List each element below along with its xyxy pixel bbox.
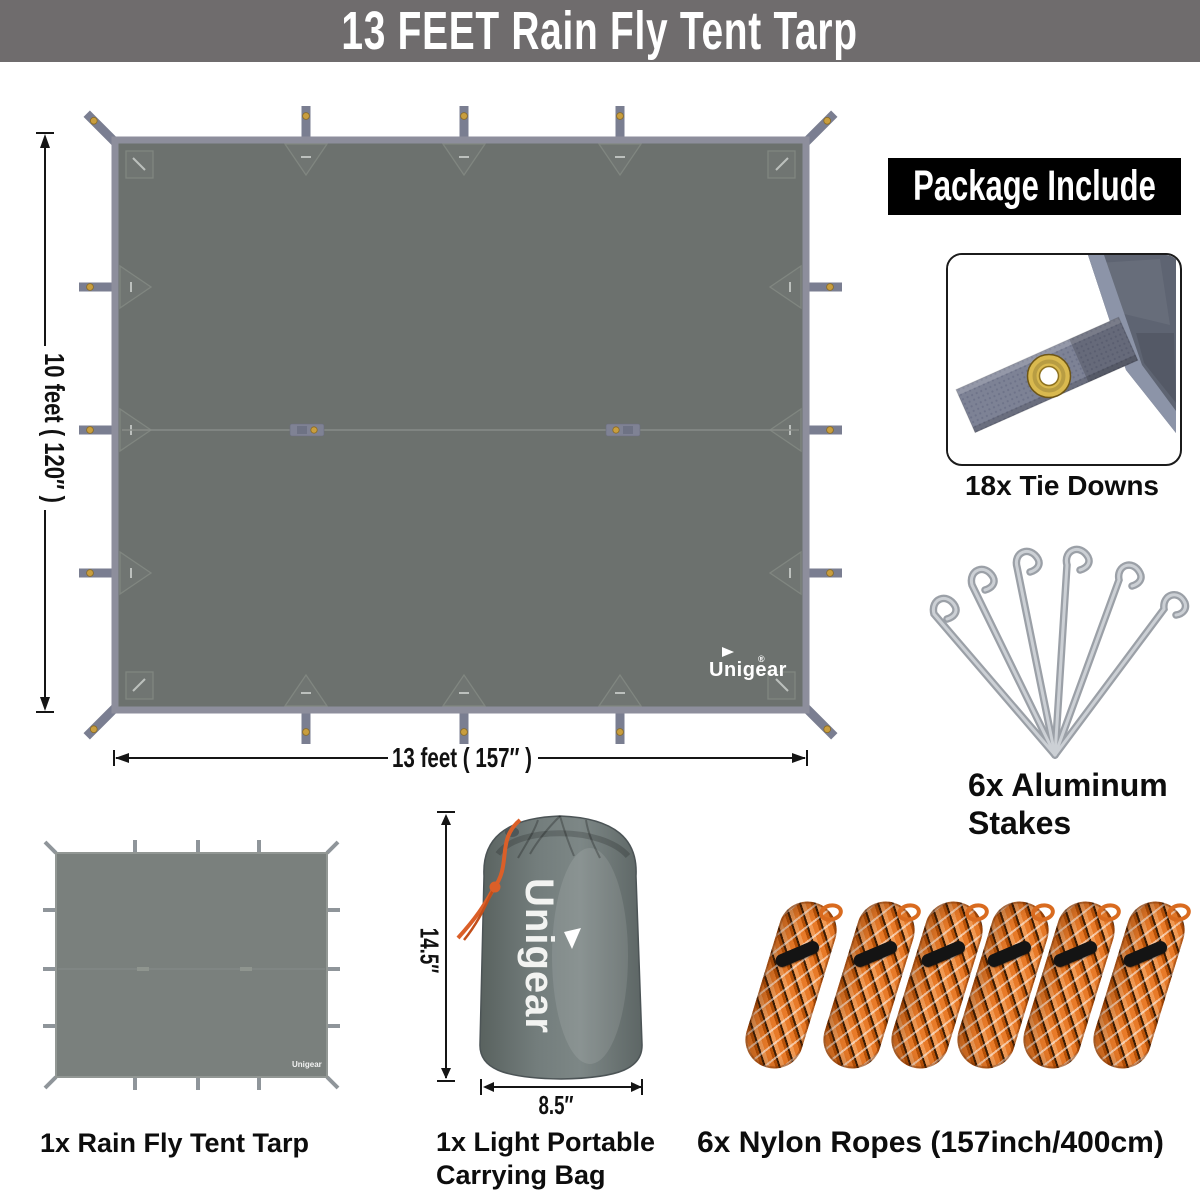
brand-reg-mark: ®	[758, 654, 765, 664]
stakes-label-line1: 6x Aluminum	[968, 766, 1168, 804]
tarp-body	[115, 140, 806, 710]
page-title: 13 FEET Rain Fly Tent Tarp	[342, 0, 858, 62]
ropes-label: 6x Nylon Ropes (157inch/400cm)	[697, 1126, 1164, 1160]
grommet-icon	[1028, 355, 1071, 398]
width-dimension-label: 13 feet ( 157″ )	[392, 742, 532, 773]
tie-down-illustration	[948, 255, 1176, 460]
tarp-diagram: Unigear ® 10 feet ( 120″ ) 13 feet ( 157…	[0, 80, 860, 780]
height-dimension-label: 10 feet ( 120″ )	[39, 353, 70, 503]
small-tarp-seam-slider	[240, 967, 252, 971]
tie-down-photo	[946, 253, 1182, 466]
package-include-header: Package Include	[888, 158, 1181, 215]
small-tarp-seam-slider	[137, 967, 149, 971]
bag-label-line2: Carrying Bag	[436, 1159, 655, 1192]
stakes-photo	[912, 552, 1197, 767]
tie-downs-label: 18x Tie Downs	[946, 470, 1178, 502]
product-infographic: 13 FEET Rain Fly Tent Tarp	[0, 0, 1200, 1200]
title-banner: 13 FEET Rain Fly Tent Tarp	[0, 0, 1200, 62]
bag-width-label: 8.5″	[531, 1090, 581, 1121]
small-tarp-image: Unigear	[30, 835, 360, 1093]
tarp-item-label: 1x Rain Fly Tent Tarp	[40, 1128, 309, 1159]
bag-item-label: 1x Light Portable Carrying Bag	[436, 1126, 655, 1192]
stakes-label-line2: Stakes	[968, 804, 1168, 842]
bag-logo: Unigear	[517, 878, 561, 1034]
stakes-label: 6x Aluminum Stakes	[968, 766, 1168, 842]
ropes-image	[750, 893, 1200, 1083]
bag-sheen	[552, 848, 628, 1064]
package-include-title: Package Include	[913, 162, 1156, 211]
small-tarp-logo: Unigear	[292, 1060, 322, 1069]
bag-image: Unigear	[440, 806, 655, 1091]
bag-label-line1: 1x Light Portable	[436, 1126, 655, 1159]
small-tarp-body	[56, 853, 327, 1077]
brand-logo-text: Unigear	[709, 659, 787, 681]
